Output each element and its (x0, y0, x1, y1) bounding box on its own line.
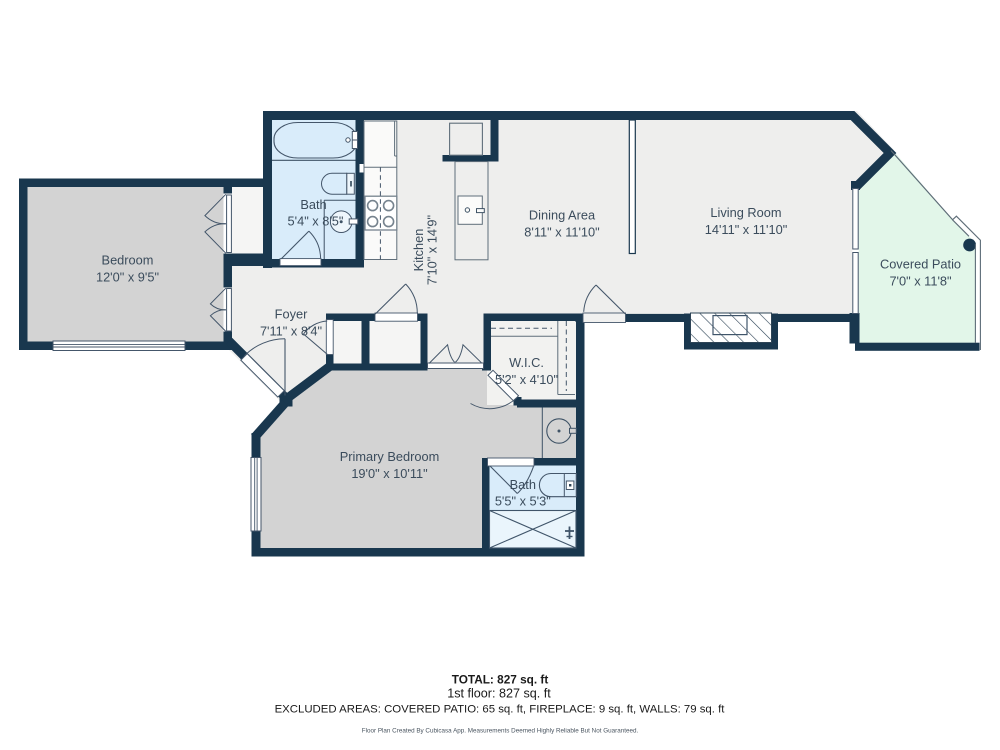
svg-text:19'0" x 10'11": 19'0" x 10'11" (351, 466, 427, 481)
svg-text:Foyer: Foyer (275, 307, 308, 322)
svg-text:8'11" x 11'10": 8'11" x 11'10" (524, 225, 599, 240)
svg-text:5'2" x 4'10": 5'2" x 4'10" (495, 372, 558, 387)
svg-text:7'11" x 8'4": 7'11" x 8'4" (260, 324, 322, 339)
svg-text:Bath: Bath (510, 477, 536, 492)
svg-text:W.I.C.: W.I.C. (509, 355, 544, 370)
svg-text:Floor Plan Created By Cubicasa: Floor Plan Created By Cubicasa App. Meas… (362, 727, 639, 734)
svg-text:12'0" x 9'5": 12'0" x 9'5" (96, 270, 159, 285)
svg-text:Living Room: Living Room (710, 205, 781, 220)
svg-text:Primary Bedroom: Primary Bedroom (340, 449, 440, 464)
svg-text:Covered Patio: Covered Patio (880, 257, 961, 272)
svg-text:Bedroom: Bedroom (102, 253, 154, 268)
svg-text:5'4" x 8'5": 5'4" x 8'5" (288, 214, 344, 229)
svg-text:EXCLUDED AREAS: COVERED PATIO:: EXCLUDED AREAS: COVERED PATIO: 65 sq. ft… (275, 704, 726, 716)
svg-text:14'11" x 11'10": 14'11" x 11'10" (705, 222, 788, 237)
svg-text:TOTAL: 827 sq. ft: TOTAL: 827 sq. ft (452, 673, 549, 687)
svg-text:Dining Area: Dining Area (529, 208, 596, 223)
svg-text:5'5" x 5'3": 5'5" x 5'3" (495, 494, 551, 509)
svg-text:7'10" x 14'9": 7'10" x 14'9" (425, 215, 440, 285)
svg-text:7'0" x 11'8": 7'0" x 11'8" (889, 274, 951, 289)
svg-text:Bath: Bath (300, 197, 326, 212)
svg-text:1st floor: 827 sq. ft: 1st floor: 827 sq. ft (447, 687, 551, 701)
